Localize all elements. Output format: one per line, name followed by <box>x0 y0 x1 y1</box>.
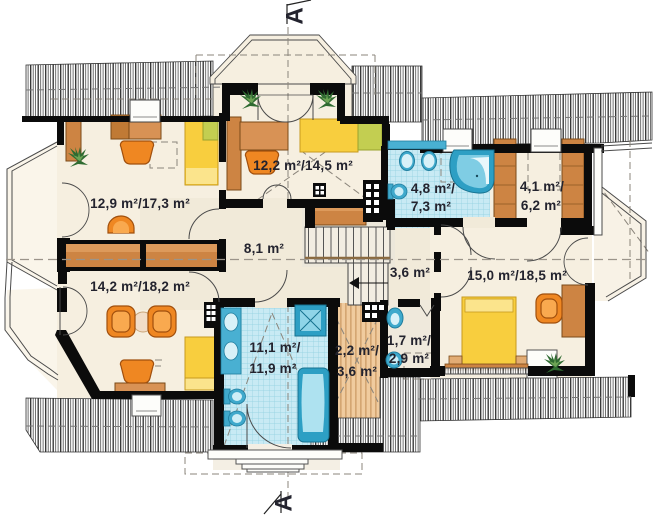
svg-text:11,1 m²/: 11,1 m²/ <box>249 340 300 355</box>
svg-text:8,1 m²: 8,1 m² <box>244 241 285 256</box>
svg-text:12,2 m²/14,5 m²: 12,2 m²/14,5 m² <box>253 158 353 173</box>
svg-text:7,3 m²: 7,3 m² <box>411 199 452 214</box>
svg-text:6,2 m²: 6,2 m² <box>521 198 562 213</box>
svg-text:11,9 m²: 11,9 m² <box>249 361 296 376</box>
svg-text:1,7 m²/: 1,7 m²/ <box>387 333 431 348</box>
svg-text:2,9 m²: 2,9 m² <box>389 351 430 366</box>
svg-text:14,2 m²/18,2 m²: 14,2 m²/18,2 m² <box>90 279 190 294</box>
svg-text:4,1 m²/: 4,1 m²/ <box>520 179 564 194</box>
svg-text:2,2 m²/: 2,2 m²/ <box>335 343 379 358</box>
svg-text:15,0 m²/18,5 m²: 15,0 m²/18,5 m² <box>467 268 567 283</box>
svg-text:4,8 m²/: 4,8 m²/ <box>411 181 455 196</box>
svg-text:A: A <box>271 494 298 511</box>
svg-text:3,6 m²: 3,6 m² <box>337 364 378 379</box>
svg-text:A: A <box>282 7 309 24</box>
svg-text:3,6 m²: 3,6 m² <box>390 265 431 280</box>
svg-text:12,9 m²/17,3 m²: 12,9 m²/17,3 m² <box>90 196 190 211</box>
